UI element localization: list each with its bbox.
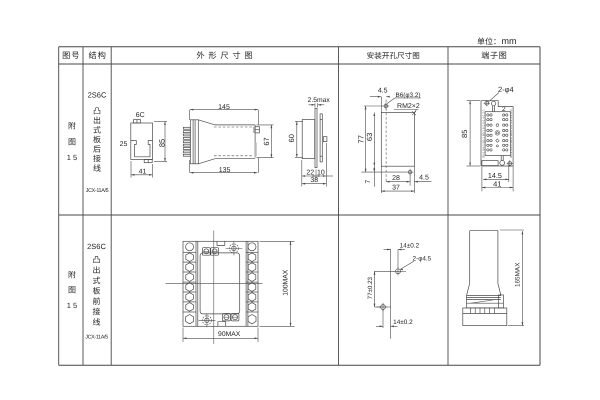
svg-text:135: 135 <box>219 167 231 174</box>
svg-text:2-φ4.5: 2-φ4.5 <box>413 255 432 262</box>
svg-text:JCX-11A/5: JCX-11A/5 <box>85 334 108 340</box>
svg-text:14±0.2: 14±0.2 <box>400 243 420 250</box>
svg-text:63: 63 <box>365 133 374 141</box>
svg-text:10: 10 <box>317 170 325 177</box>
svg-text:85: 85 <box>460 130 469 138</box>
svg-text:37: 37 <box>392 184 400 191</box>
svg-text:38: 38 <box>310 177 318 184</box>
svg-text:67: 67 <box>262 137 271 145</box>
svg-text:28: 28 <box>392 175 400 182</box>
svg-text:7: 7 <box>365 180 372 184</box>
svg-text:B6-2 B4-2 B2-2 B0-2 8-2 6-2 4-: B6-2 B4-2 B2-2 B0-2 8-2 6-2 4-2 2-2 <box>509 109 513 158</box>
svg-text:22: 22 <box>306 170 314 177</box>
svg-text:90MAX: 90MAX <box>218 331 241 338</box>
svg-text:4.5: 4.5 <box>378 87 388 94</box>
svg-text:100MAX: 100MAX <box>283 269 290 296</box>
svg-text:77: 77 <box>356 135 365 143</box>
svg-text:145: 145 <box>218 104 230 111</box>
svg-text:mm: mm <box>502 36 517 46</box>
svg-text:25: 25 <box>120 141 128 148</box>
svg-text:165MAX: 165MAX <box>515 262 522 287</box>
svg-text:2.5max: 2.5max <box>308 97 331 104</box>
svg-text:1 5: 1 5 <box>67 301 77 310</box>
svg-text:2S6C: 2S6C <box>87 242 106 251</box>
svg-text:60: 60 <box>287 134 296 142</box>
svg-text:41: 41 <box>139 168 147 175</box>
svg-text:1 5: 1 5 <box>67 153 77 162</box>
svg-text:B6-1 B4-1 B2-1 B0-1 8-1 6-1 4-: B6-1 B4-1 B2-1 B0-1 8-1 6-1 4-1 2-1 <box>481 109 485 158</box>
svg-text:JCX-11A/5: JCX-11A/5 <box>86 188 109 194</box>
svg-text:41: 41 <box>493 180 501 189</box>
svg-text:RM2×2: RM2×2 <box>397 103 420 110</box>
svg-text:2S6C: 2S6C <box>88 91 107 100</box>
svg-text:85: 85 <box>158 139 167 147</box>
svg-text:14±0.2: 14±0.2 <box>393 319 413 326</box>
svg-text:2-φ4: 2-φ4 <box>498 85 514 94</box>
svg-text:77±0.23: 77±0.23 <box>367 276 374 299</box>
svg-text:6C: 6C <box>136 112 145 119</box>
svg-text:4.5: 4.5 <box>419 175 429 182</box>
